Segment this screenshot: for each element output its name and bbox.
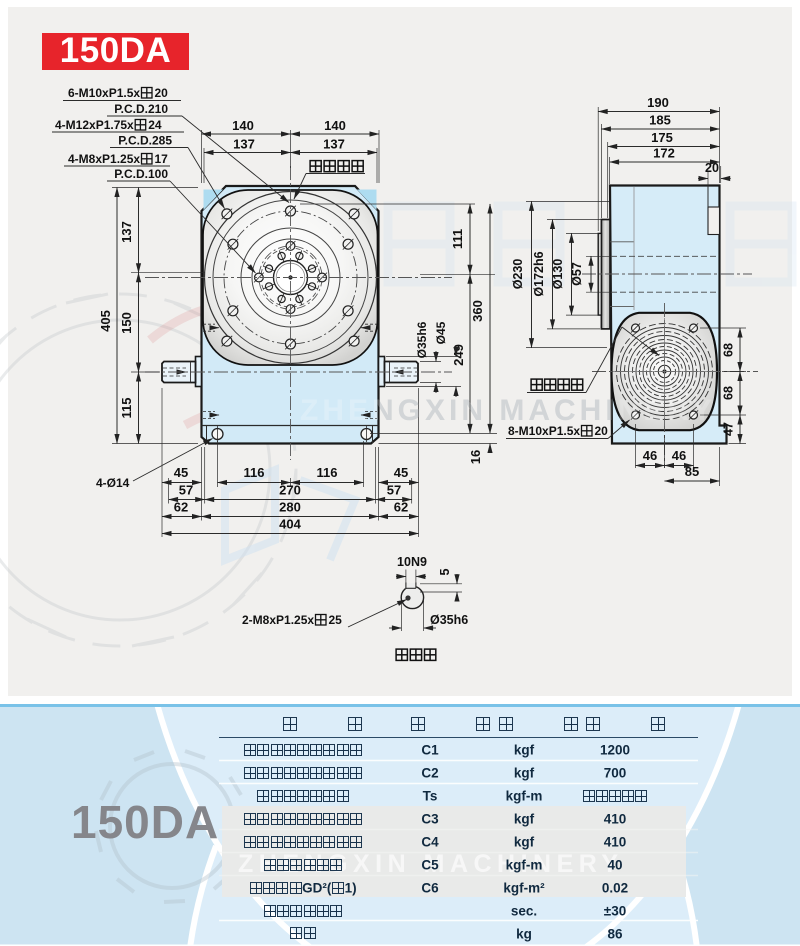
svg-text:115: 115 xyxy=(119,398,134,419)
svg-text:45: 45 xyxy=(394,465,408,480)
svg-text:25: 25 xyxy=(329,613,343,627)
svg-text:16: 16 xyxy=(468,450,483,464)
svg-text:47: 47 xyxy=(722,422,736,436)
svg-text:62: 62 xyxy=(174,500,188,515)
svg-text:172: 172 xyxy=(653,146,675,161)
svg-text:62: 62 xyxy=(394,500,408,515)
svg-text:57: 57 xyxy=(179,483,193,498)
svg-text:270: 270 xyxy=(279,483,301,498)
svg-text:4-Ø14: 4-Ø14 xyxy=(96,476,130,490)
svg-text:185: 185 xyxy=(649,113,671,128)
svg-text:6-M10xP1.5x: 6-M10xP1.5x xyxy=(68,86,140,100)
svg-text:20: 20 xyxy=(705,161,719,175)
svg-text:2-M8xP1.25x: 2-M8xP1.25x xyxy=(242,613,314,627)
svg-text:ZHENGXIN MACHINERY: ZHENGXIN MACHINERY xyxy=(300,394,716,427)
svg-text:Ø45: Ø45 xyxy=(434,321,448,344)
svg-text:46: 46 xyxy=(643,448,657,463)
svg-text:150: 150 xyxy=(119,312,134,334)
svg-text:Ø57: Ø57 xyxy=(570,262,584,286)
svg-text:175: 175 xyxy=(651,130,673,145)
svg-text:20: 20 xyxy=(155,86,169,100)
svg-text:137: 137 xyxy=(233,137,255,152)
svg-text:116: 116 xyxy=(317,465,338,480)
svg-text:Ø230: Ø230 xyxy=(511,259,525,290)
svg-text:Ø35h6: Ø35h6 xyxy=(415,321,429,358)
svg-text:24: 24 xyxy=(148,118,162,132)
svg-text:137: 137 xyxy=(119,221,134,243)
svg-text:140: 140 xyxy=(324,118,346,133)
svg-text:17: 17 xyxy=(155,152,169,166)
svg-text:404: 404 xyxy=(279,517,301,532)
svg-text:405: 405 xyxy=(98,310,113,332)
svg-text:P.C.D.100: P.C.D.100 xyxy=(114,167,168,181)
svg-text:68: 68 xyxy=(722,386,736,400)
svg-text:4-M8xP1.25x: 4-M8xP1.25x xyxy=(68,152,140,166)
svg-text:Ø35h6: Ø35h6 xyxy=(430,613,468,627)
svg-text:68: 68 xyxy=(722,343,736,357)
svg-text:280: 280 xyxy=(279,500,301,515)
svg-text:46: 46 xyxy=(672,448,686,463)
svg-text:Ø130: Ø130 xyxy=(551,259,565,290)
svg-text:190: 190 xyxy=(647,95,669,110)
svg-text:85: 85 xyxy=(685,464,699,479)
svg-text:5: 5 xyxy=(438,568,452,575)
svg-text:111: 111 xyxy=(450,229,465,249)
svg-text:249: 249 xyxy=(451,344,466,366)
svg-text:360: 360 xyxy=(470,300,485,322)
svg-text:45: 45 xyxy=(174,465,188,480)
svg-text:116: 116 xyxy=(244,465,265,480)
svg-text:57: 57 xyxy=(387,483,401,498)
svg-text:137: 137 xyxy=(323,137,345,152)
svg-text:10N9: 10N9 xyxy=(397,555,427,569)
svg-text:P.C.D.210: P.C.D.210 xyxy=(114,102,168,116)
svg-text:4-M12xP1.75x: 4-M12xP1.75x xyxy=(55,118,134,132)
svg-text:140: 140 xyxy=(232,118,254,133)
svg-text:Ø172h6: Ø172h6 xyxy=(532,251,546,296)
svg-text:P.C.D.285: P.C.D.285 xyxy=(118,134,172,148)
